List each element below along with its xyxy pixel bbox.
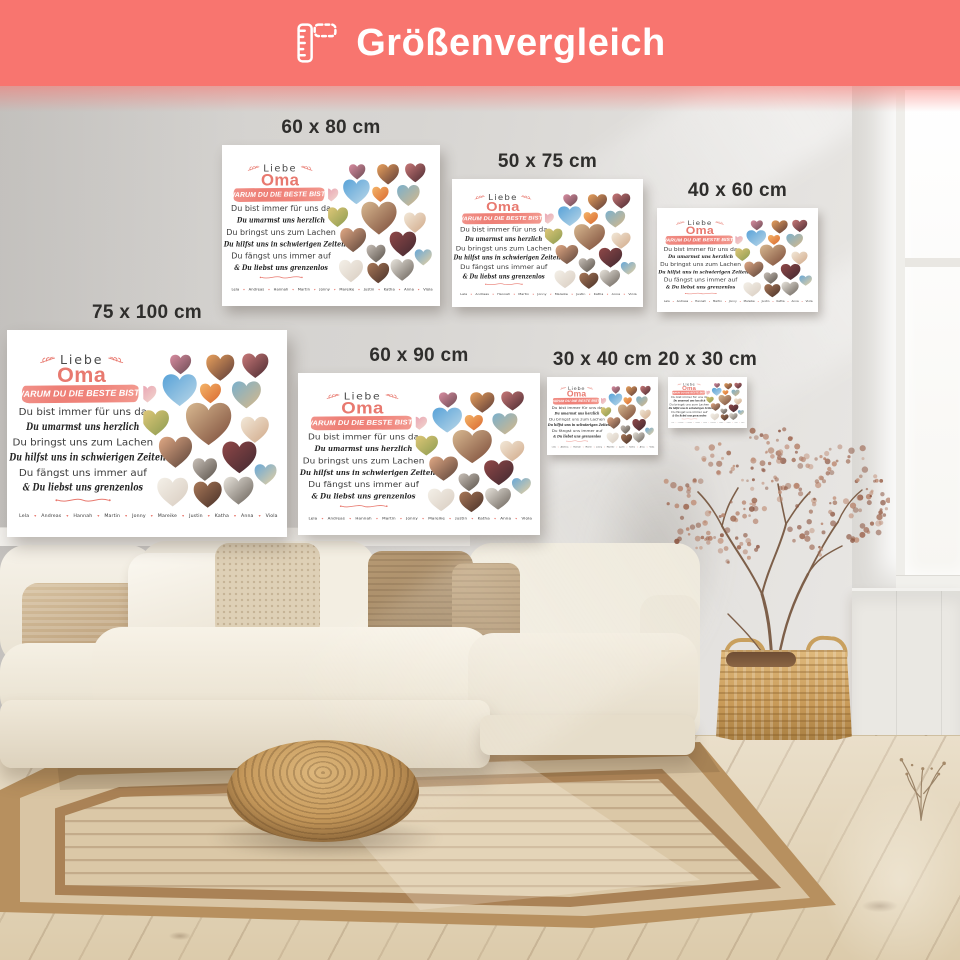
photo-heart — [416, 436, 438, 456]
photo-heart — [372, 187, 388, 202]
photo-heart — [772, 220, 788, 233]
photo-heart — [735, 236, 743, 244]
message-line: Du hilfst uns in schwierigen Zeiten — [300, 465, 427, 480]
photo-heart — [731, 390, 739, 397]
photo-hearts-collage — [143, 338, 284, 528]
bottom-flourish-icon — [339, 503, 387, 509]
photo-heart — [428, 489, 455, 512]
name-label: Martin — [713, 300, 722, 303]
heart-separator-icon: ♥ — [400, 517, 402, 520]
name-label: Lela — [308, 517, 317, 521]
heart-separator-icon: ♥ — [725, 300, 726, 302]
photo-heart — [712, 388, 722, 396]
heart-separator-icon: ♥ — [691, 300, 692, 302]
size-label: 60 x 80 cm — [281, 117, 380, 139]
heart-separator-icon: ♥ — [66, 514, 68, 518]
photo-hearts-collage — [735, 212, 816, 308]
heart-separator-icon: ♥ — [97, 514, 99, 518]
photo-heart — [588, 194, 607, 210]
photo-heart — [465, 415, 483, 430]
message-line: & Du liebst uns grenzenlos — [454, 271, 554, 283]
name-label: Lela — [664, 300, 670, 303]
photo-heart — [792, 220, 807, 232]
photo-heart — [404, 212, 426, 232]
size-label: 40 x 60 cm — [688, 180, 787, 202]
name-label: Hannah — [73, 514, 92, 519]
question-banner: WARUM DU DIE BESTE BIST? — [462, 213, 542, 225]
photo-heart — [556, 245, 579, 264]
photo-heart — [186, 403, 231, 445]
photo-heart — [545, 229, 563, 245]
ruler-icon — [294, 20, 340, 66]
name-label: Hannah — [355, 517, 371, 521]
name-label: Hannah — [274, 288, 289, 292]
photo-heart — [349, 164, 365, 179]
photo-heart — [340, 228, 366, 252]
question-banner-text: WARUM DU DIE BESTE BIST? — [229, 190, 330, 199]
photo-hearts-collage — [545, 184, 641, 302]
photo-heart — [612, 194, 630, 209]
photo-heart — [760, 245, 786, 266]
photo-heart — [558, 206, 581, 226]
photo-heart — [621, 262, 636, 275]
name-label: Martin — [382, 517, 396, 521]
message-line: & Du liebst uns grenzenlos — [9, 478, 156, 497]
photo-heart — [764, 284, 780, 297]
name-label: Andreas — [328, 517, 345, 521]
photo-heart — [574, 224, 605, 250]
photo-heart — [367, 245, 386, 263]
heart-separator-icon: ♥ — [321, 517, 323, 520]
heart-separator-icon: ♥ — [583, 446, 584, 448]
photo-heart — [206, 355, 234, 381]
photo-heart — [746, 230, 766, 246]
photo-heart — [377, 164, 399, 184]
header-banner: Größenvergleich — [0, 0, 960, 86]
photo-heart — [484, 460, 513, 485]
heart-separator-icon: ♥ — [243, 288, 245, 291]
photo-heart — [194, 482, 222, 508]
storage-basket — [716, 650, 852, 740]
photo-heart — [459, 473, 480, 491]
message-line: Du hilfst uns in schwierigen Zeiten — [548, 421, 606, 428]
photo-heart — [193, 458, 217, 481]
message-line: Du umarmst uns herzlich — [454, 233, 554, 245]
photo-heart — [781, 264, 801, 280]
size-label: 60 x 90 cm — [369, 345, 468, 367]
heart-separator-icon: ♥ — [376, 517, 378, 520]
photo-heart — [724, 383, 732, 389]
dried-tree — [630, 400, 890, 670]
photo-heart — [242, 354, 268, 378]
photo-heart — [232, 381, 261, 408]
photo-heart — [390, 232, 417, 257]
heart-separator-icon: ♥ — [570, 446, 571, 448]
question-banner-text: WARUM DU DIE BESTE BIST? — [662, 237, 736, 243]
message-line: Du hilfst uns in schwierigen Zeiten — [454, 252, 554, 264]
photo-heart — [459, 492, 483, 512]
bottom-flourish — [658, 292, 743, 297]
name-label: Andreas — [475, 292, 489, 295]
photo-heart — [786, 234, 803, 248]
heart-separator-icon: ♥ — [558, 446, 559, 448]
photo-heart — [621, 425, 631, 434]
photo-heart — [224, 477, 254, 505]
photo-heart — [611, 233, 630, 249]
poster: 60 x 80 cm Liebe OmaWARUM DU DIE BESTE B… — [222, 145, 440, 306]
photo-heart — [714, 383, 720, 388]
poster-canvas: Liebe OmaWARUM DU DIE BESTE BIST?Du bist… — [657, 208, 818, 312]
message-line: & Du liebst uns grenzenlos — [300, 489, 427, 504]
poster: 50 x 75 cm Liebe OmaWARUM DU DIE BESTE B… — [452, 179, 643, 307]
message-line: Du hilfst uns in schwierigen Zeiten — [658, 267, 743, 277]
message-lines: Du bist immer für uns daDu umarmst uns h… — [9, 405, 156, 496]
photo-heart — [563, 194, 577, 206]
message-line: Du umarmst uns herzlich — [300, 442, 427, 457]
message-lines: Du bist immer für uns daDu umarmst uns h… — [454, 225, 554, 281]
photo-heart — [768, 235, 780, 245]
photo-heart — [241, 417, 269, 443]
photo-heart — [734, 383, 741, 389]
photo-heart — [339, 260, 363, 282]
photo-heart — [343, 179, 370, 204]
photo-heart — [492, 413, 517, 434]
dried-twigs — [885, 742, 957, 822]
bottom-flourish-icon — [566, 440, 588, 443]
photo-heart — [200, 384, 221, 404]
photo-heart — [626, 386, 637, 396]
poster-canvas: Liebe OmaWARUM DU DIE BESTE BIST?Du bist… — [452, 179, 643, 307]
heart-separator-icon: ♥ — [292, 288, 294, 291]
photo-heart — [605, 211, 625, 228]
photo-heart — [415, 249, 432, 265]
photo-heart — [751, 220, 763, 230]
bottom-flourish-icon — [485, 282, 523, 287]
recipient-name: Oma — [300, 398, 425, 417]
photo-heart — [439, 392, 457, 407]
name-label: Lela — [552, 446, 556, 448]
photo-heart — [500, 441, 524, 461]
photo-heart — [255, 464, 277, 484]
photo-heart — [391, 259, 414, 281]
name-label: Lela — [460, 292, 467, 295]
photo-heart — [545, 214, 554, 224]
message-lines: Du bist immer für uns daDu umarmst uns h… — [224, 203, 338, 274]
message-line: Du umarmst uns herzlich — [658, 252, 743, 262]
heart-separator-icon: ♥ — [349, 517, 351, 520]
photo-heart — [163, 374, 197, 406]
photo-heart — [433, 408, 462, 433]
recipient-name: Oma — [224, 170, 337, 189]
photo-heart — [405, 163, 425, 182]
question-banner-text: WARUM DU DIE BESTE BIST? — [670, 391, 707, 394]
photo-heart — [416, 417, 427, 430]
photo-heart — [453, 430, 492, 463]
photo-heart — [781, 282, 798, 296]
heart-separator-icon: ♥ — [673, 300, 674, 302]
poster: 75 x 100 cm Liebe OmaWARUM DU DIE BESTE … — [7, 330, 287, 537]
heart-separator-icon: ♥ — [709, 300, 710, 302]
name-label: Andreas — [677, 300, 689, 303]
photo-hearts-collage — [416, 379, 538, 528]
question-banner: WARUM DU DIE BESTE BIST? — [234, 187, 325, 202]
heart-separator-icon: ♥ — [471, 293, 473, 296]
photo-heart — [328, 207, 348, 227]
name-label: Hannah — [695, 300, 706, 303]
photo-heart — [722, 390, 728, 395]
question-banner-text: WARUM DU DIE BESTE BIST? — [16, 388, 145, 399]
photo-heart — [799, 275, 812, 285]
photo-heart — [328, 188, 338, 201]
bottom-flourish — [454, 282, 554, 288]
question-banner: WARUM DU DIE BESTE BIST? — [311, 416, 412, 431]
photo-heart — [429, 457, 458, 481]
bottom-flourish — [9, 497, 156, 507]
photo-heart — [367, 263, 389, 283]
name-label: Lela — [19, 514, 29, 519]
heart-separator-icon: ♥ — [34, 514, 36, 518]
bottom-flourish — [224, 275, 338, 283]
photo-heart — [764, 272, 778, 283]
question-banner-text: WARUM DU DIE BESTE BIST? — [458, 215, 546, 222]
bottom-flourish-icon — [685, 292, 717, 296]
photo-heart — [554, 270, 575, 288]
question-banner-text: WARUM DU DIE BESTE BIST? — [305, 419, 417, 428]
photo-heart — [744, 262, 763, 278]
photo-heart — [706, 391, 710, 395]
name-label: Andreas — [561, 446, 569, 448]
photo-heart — [791, 252, 807, 265]
basket-contents — [726, 652, 796, 667]
poster-canvas: Liebe OmaWARUM DU DIE BESTE BIST?Du bist… — [222, 145, 440, 306]
poster: 40 x 60 cm Liebe OmaWARUM DU DIE BESTE B… — [657, 208, 818, 312]
photo-heart — [579, 258, 596, 272]
message-lines: Du bist immer für uns daDu umarmst uns h… — [658, 245, 743, 291]
photo-heart — [735, 248, 750, 261]
name-label: Andreas — [249, 288, 265, 292]
photo-heart — [501, 391, 524, 410]
name-label: Hannah — [497, 292, 510, 295]
photo-heart — [607, 433, 619, 444]
photo-heart — [470, 392, 494, 412]
photo-heart — [607, 417, 620, 429]
product-scene: 60 x 80 cm Liebe OmaWARUM DU DIE BESTE B… — [0, 0, 960, 960]
photo-heart — [143, 386, 156, 403]
photo-heart — [612, 386, 620, 393]
name-label: Martin — [586, 446, 592, 448]
size-label: 75 x 100 cm — [92, 302, 202, 324]
photo-hearts-collage — [328, 151, 438, 299]
message-lines: Du bist immer für uns daDu umarmst uns h… — [548, 405, 606, 439]
bottom-flourish-icon — [55, 497, 111, 504]
photo-heart — [361, 202, 396, 235]
message-lines: Du bist immer für uns daDu umarmst uns h… — [300, 431, 427, 502]
heart-separator-icon: ♥ — [514, 293, 516, 296]
heart-separator-icon: ♥ — [492, 293, 494, 296]
photo-heart — [743, 282, 761, 296]
name-label: Hannah — [573, 446, 581, 448]
photo-heart — [579, 273, 598, 289]
size-label: 30 x 40 cm — [553, 349, 652, 371]
photo-heart — [170, 355, 191, 375]
photo-heart — [157, 478, 188, 507]
photo-heart — [512, 478, 531, 494]
heart-separator-icon: ♥ — [314, 288, 316, 291]
question-banner: WARUM DU DIE BESTE BIST? — [553, 398, 599, 405]
name-label: Andreas — [41, 514, 61, 519]
photo-heart — [159, 437, 192, 468]
heart-separator-icon: ♥ — [594, 446, 595, 448]
size-label: 50 x 75 cm — [498, 151, 597, 173]
question-banner: WARUM DU DIE BESTE BIST? — [672, 390, 705, 395]
photo-heart — [599, 248, 622, 268]
heart-separator-icon: ♥ — [268, 288, 270, 291]
photo-heart — [600, 270, 620, 287]
page-title: Größenvergleich — [356, 22, 665, 65]
size-label: 20 x 30 cm — [658, 349, 757, 371]
message-line: & Du liebst uns grenzenlos — [224, 260, 338, 275]
name-label: Lela — [231, 288, 239, 292]
name-label: Martin — [518, 292, 529, 295]
bottom-flourish — [300, 503, 427, 511]
photo-heart — [640, 386, 650, 395]
message-line: Du hilfst uns in schwierigen Zeiten — [224, 237, 338, 252]
photo-heart — [584, 212, 598, 224]
name-label: Martin — [298, 288, 310, 292]
poster: 60 x 90 cm Liebe OmaWARUM DU DIE BESTE B… — [298, 373, 540, 535]
message-line: Du umarmst uns herzlich — [9, 418, 156, 437]
heart-separator-icon: ♥ — [125, 514, 127, 518]
message-line: Du umarmst uns herzlich — [224, 213, 338, 228]
question-banner-text: WARUM DU DIE BESTE BIST? — [550, 399, 601, 403]
photo-heart — [222, 441, 256, 473]
heart-separator-icon: ♥ — [532, 293, 534, 296]
poster-canvas: Liebe OmaWARUM DU DIE BESTE BIST?Du bist… — [298, 373, 540, 535]
poster-canvas: Liebe OmaWARUM DU DIE BESTE BIST?Du bist… — [7, 330, 287, 537]
recipient-name: Oma — [9, 362, 154, 387]
photo-heart — [609, 394, 623, 406]
question-banner: WARUM DU DIE BESTE BIST? — [666, 235, 733, 244]
question-banner: WARUM DU DIE BESTE BIST? — [22, 385, 139, 404]
message-line: Du umarmst uns herzlich — [548, 410, 606, 417]
bottom-flourish-icon — [259, 275, 303, 281]
bottom-flourish — [548, 440, 606, 444]
name-label: Martin — [104, 514, 120, 519]
message-line: Du hilfst uns in schwierigen Zeiten — [9, 448, 156, 467]
photo-heart — [601, 407, 611, 417]
photo-heart — [601, 398, 606, 404]
photo-heart — [485, 488, 511, 510]
photo-heart — [397, 185, 420, 206]
photo-heart — [143, 410, 169, 435]
